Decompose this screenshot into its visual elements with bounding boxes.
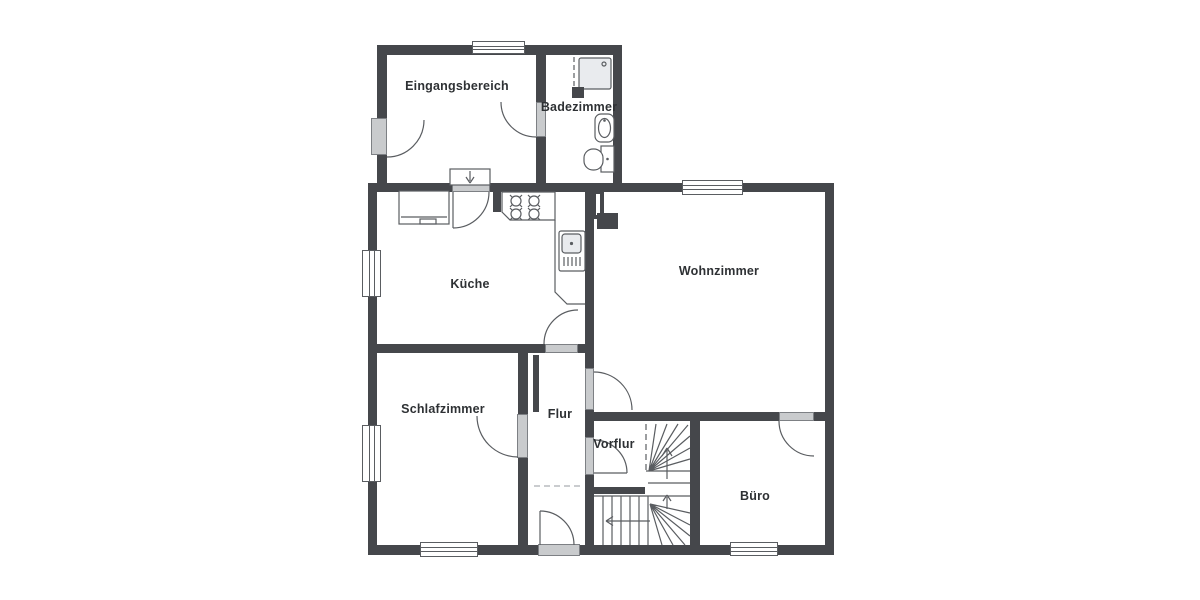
shower xyxy=(572,57,611,98)
kitchen-sink xyxy=(559,231,585,271)
door-swing-kitchen-hall xyxy=(544,310,578,344)
door-swing-livingroom xyxy=(594,372,632,410)
room-label-schlafzimmer: Schlafzimmer xyxy=(401,402,485,416)
kitchen-appliance xyxy=(399,191,449,224)
room-label-badezimmer: Badezimmer xyxy=(541,100,617,114)
room-label-buero: Büro xyxy=(740,489,770,503)
room-label-wohnzimmer: Wohnzimmer xyxy=(679,264,759,278)
detail-overlay xyxy=(0,0,1200,600)
room-label-kueche: Küche xyxy=(450,277,489,291)
washbasin xyxy=(595,114,614,142)
door-swing-office xyxy=(779,421,814,456)
door-swing-kitchen-entry xyxy=(453,192,489,228)
door-swing-hall-entry xyxy=(540,511,574,545)
stove-4-burners xyxy=(502,192,555,220)
entry-steps-arrow xyxy=(450,169,490,185)
room-label-flur: Flur xyxy=(548,407,572,421)
room-label-vorflur: Vorflur xyxy=(593,437,634,451)
toilet xyxy=(584,146,614,172)
door-swing-bedroom xyxy=(477,416,518,457)
door-swing-bathroom xyxy=(501,102,536,137)
floor-plan-canvas: Eingangsbereich Badezimmer Küche Wohnzim… xyxy=(0,0,1200,600)
room-label-eingangsbereich: Eingangsbereich xyxy=(405,79,509,93)
door-swing-entry xyxy=(387,120,424,157)
